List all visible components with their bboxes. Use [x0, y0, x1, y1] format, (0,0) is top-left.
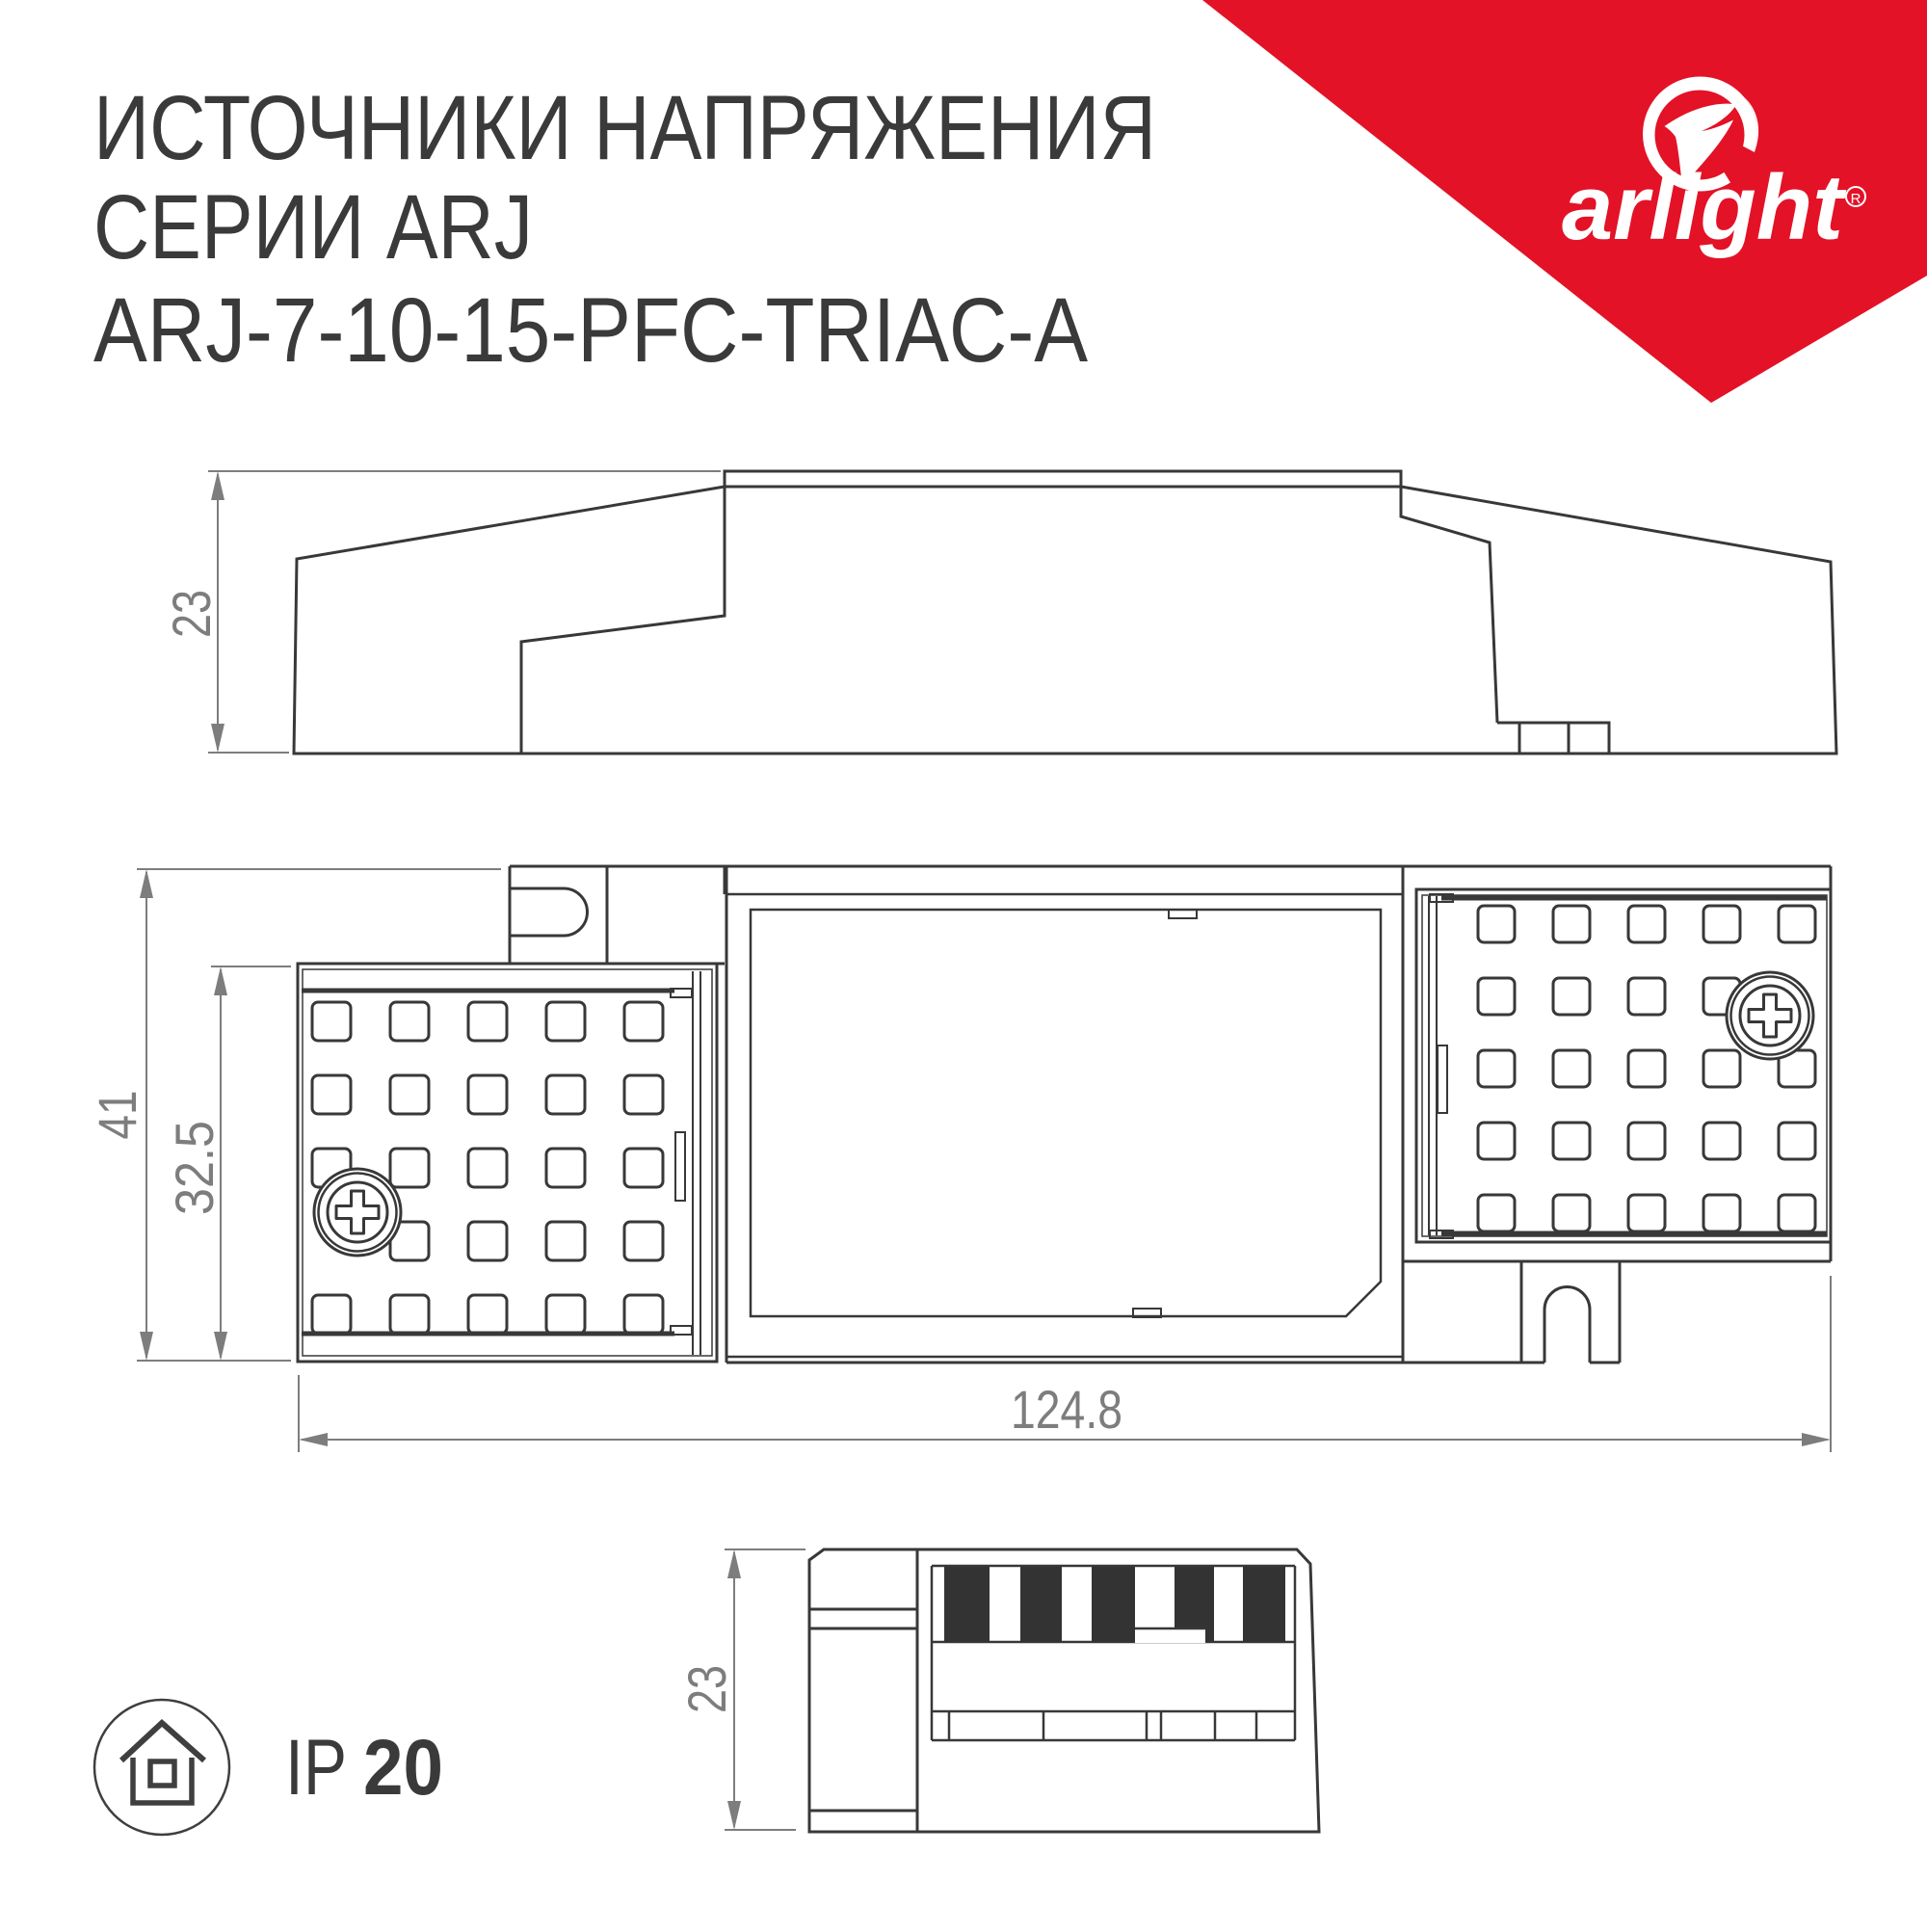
- svg-text:arlight: arlight: [1562, 156, 1847, 259]
- svg-text:ARJ-7-10-15-PFC-TRIAC-A: ARJ-7-10-15-PFC-TRIAC-A: [93, 279, 1089, 382]
- svg-text:R: R: [1851, 191, 1861, 207]
- svg-text:20: 20: [363, 1724, 443, 1812]
- svg-text:23: 23: [161, 590, 222, 638]
- svg-text:IP: IP: [285, 1724, 347, 1812]
- svg-text:124.8: 124.8: [1011, 1379, 1122, 1440]
- svg-text:СЕРИИ ARJ: СЕРИИ ARJ: [93, 176, 533, 278]
- svg-text:ИСТОЧНИКИ НАПРЯЖЕНИЯ: ИСТОЧНИКИ НАПРЯЖЕНИЯ: [93, 77, 1156, 179]
- svg-text:41: 41: [87, 1091, 147, 1140]
- svg-text:32.5: 32.5: [164, 1121, 224, 1215]
- svg-text:23: 23: [676, 1665, 737, 1713]
